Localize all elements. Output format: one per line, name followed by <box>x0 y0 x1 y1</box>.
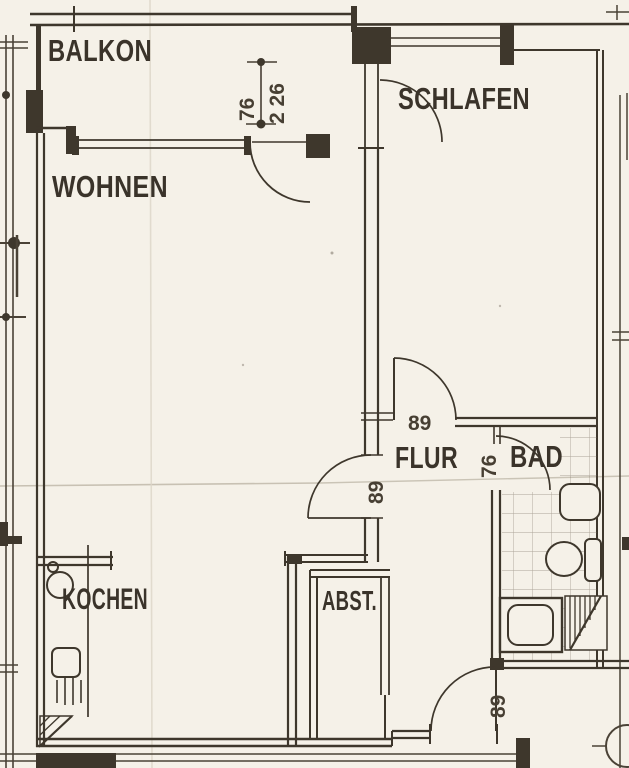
room-label-balkon: BALKON <box>48 33 152 68</box>
dim-wohnen-door-width: 89 <box>365 481 388 504</box>
room-label-schlafen: SCHLAFEN <box>398 81 530 116</box>
floorplan-drawing: BALKON 76 2 26 WOHNEN <box>0 0 629 768</box>
shower-tray-icon <box>500 598 562 652</box>
room-label-kochen: KOCHEN <box>62 583 148 616</box>
cistern-icon <box>585 539 601 581</box>
floorplan-scan: BALKON 76 2 26 WOHNEN <box>0 0 629 768</box>
shaft-hatch-bath-icon <box>565 596 607 650</box>
wall-block <box>306 134 330 158</box>
wall-block <box>26 90 43 133</box>
room-label-bad: BAD <box>510 439 563 474</box>
dim-balcony-width: 2 26 <box>266 83 289 124</box>
room-label-wohnen: WOHNEN <box>52 169 168 204</box>
toilet-icon <box>546 542 582 576</box>
washbasin-icon <box>560 484 600 520</box>
room-label-abst: ABST. <box>322 585 377 616</box>
dim-schlafen-door-width: 89 <box>408 412 431 435</box>
dim-balcony-door-width: 76 <box>236 98 259 121</box>
dim-bad-door-width: 76 <box>478 455 501 478</box>
dim-entrance-door-width: 89 <box>487 695 510 718</box>
room-label-flur: FLUR <box>395 440 458 475</box>
